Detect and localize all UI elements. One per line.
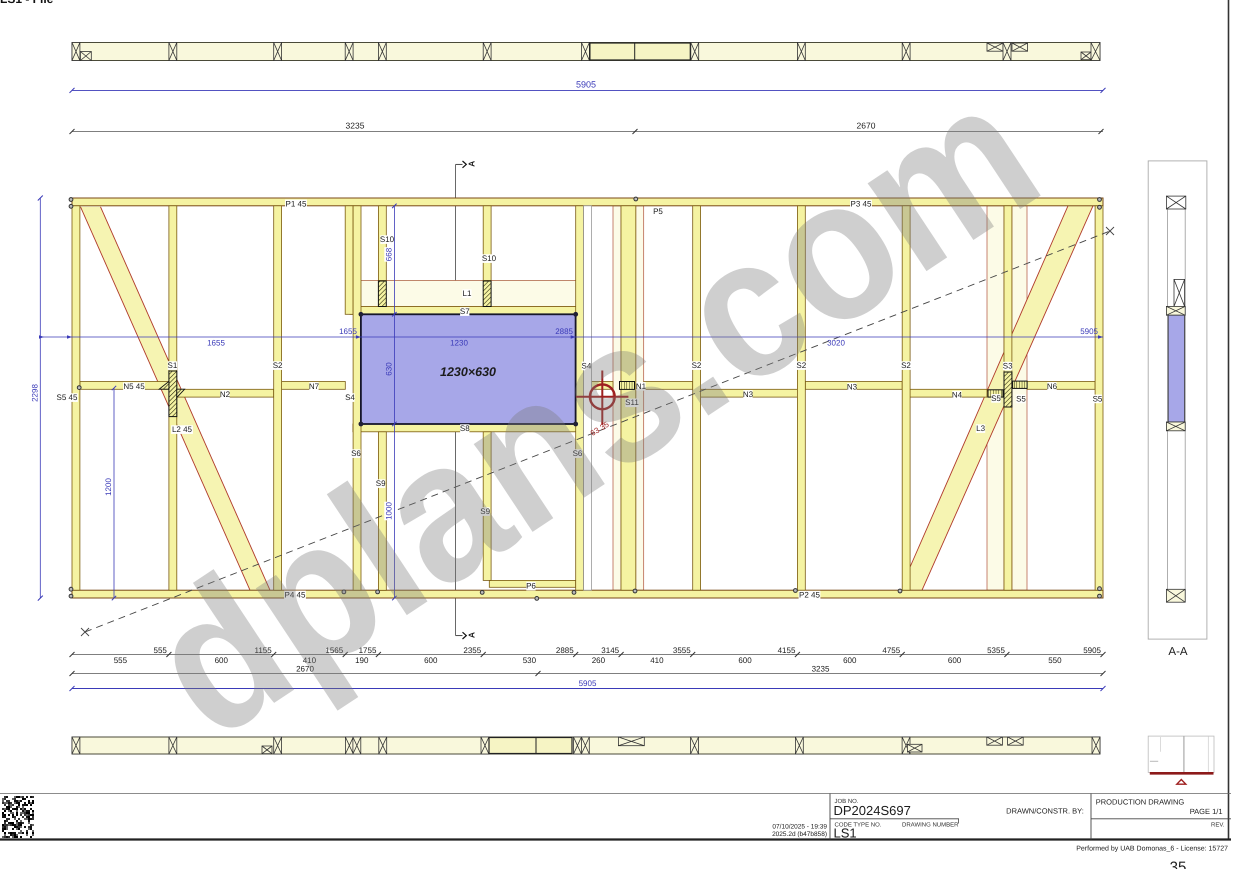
- svg-text:S5: S5: [991, 394, 1001, 403]
- svg-text:3235: 3235: [346, 121, 365, 131]
- svg-text:410: 410: [650, 656, 664, 665]
- svg-text:1230: 1230: [450, 339, 468, 348]
- svg-text:S5 45: S5 45: [57, 393, 78, 402]
- svg-text:5905: 5905: [1083, 646, 1101, 655]
- svg-text:N3: N3: [847, 383, 858, 392]
- svg-text:35: 35: [1170, 859, 1187, 869]
- svg-text:600: 600: [948, 656, 962, 665]
- svg-text:L2 45: L2 45: [172, 425, 193, 434]
- svg-text:3235: 3235: [812, 665, 830, 674]
- svg-text:P1 45: P1 45: [286, 199, 307, 208]
- svg-text:600: 600: [843, 656, 857, 665]
- svg-text:5905: 5905: [576, 80, 596, 90]
- svg-text:530: 530: [523, 656, 537, 665]
- svg-text:5355: 5355: [987, 646, 1005, 655]
- svg-text:550: 550: [1048, 656, 1062, 665]
- svg-text:L3: L3: [976, 424, 985, 433]
- svg-text:LS1 - File: LS1 - File: [0, 0, 54, 6]
- svg-text:A: A: [467, 632, 477, 638]
- svg-text:S2: S2: [901, 361, 911, 370]
- svg-text:S3: S3: [1003, 362, 1013, 371]
- svg-text:S10: S10: [482, 254, 497, 263]
- svg-text:N4: N4: [952, 391, 963, 400]
- svg-text:Performed by UAB Domonas_6 - L: Performed by UAB Domonas_6 - License: 15…: [1076, 844, 1228, 852]
- svg-text:1655: 1655: [207, 339, 225, 348]
- svg-text:1655: 1655: [339, 327, 357, 336]
- svg-text:PAGE 1/1: PAGE 1/1: [1190, 807, 1223, 816]
- svg-text:S1: S1: [168, 361, 178, 370]
- svg-text:LS1: LS1: [834, 825, 857, 840]
- svg-text:S10: S10: [380, 235, 395, 244]
- svg-text:P2 45: P2 45: [799, 591, 820, 600]
- svg-text:PRODUCTION DRAWING: PRODUCTION DRAWING: [1096, 797, 1185, 806]
- svg-text:2355: 2355: [463, 646, 481, 655]
- svg-text:2298: 2298: [31, 384, 40, 402]
- svg-text:N2: N2: [220, 390, 231, 399]
- svg-text:N6: N6: [1047, 382, 1058, 391]
- svg-text:S5: S5: [1016, 394, 1026, 403]
- svg-text:5905: 5905: [1080, 327, 1098, 336]
- svg-text:1200: 1200: [104, 478, 113, 496]
- svg-text:3555: 3555: [673, 646, 691, 655]
- svg-text:630: 630: [385, 362, 394, 376]
- svg-text:3145: 3145: [601, 646, 619, 655]
- svg-text:S2: S2: [273, 361, 283, 370]
- svg-text:S4: S4: [345, 393, 355, 402]
- svg-text:555: 555: [114, 656, 128, 665]
- svg-text:600: 600: [424, 656, 438, 665]
- svg-text:07/10/2025 - 19:39: 07/10/2025 - 19:39: [772, 824, 827, 831]
- svg-text:S7: S7: [460, 307, 470, 316]
- svg-text:2885: 2885: [556, 646, 574, 655]
- svg-text:4155: 4155: [778, 646, 796, 655]
- svg-text:DP2024S697: DP2024S697: [834, 803, 911, 818]
- svg-text:260: 260: [592, 656, 606, 665]
- svg-text:N5 45: N5 45: [123, 382, 145, 391]
- svg-text:N7: N7: [309, 382, 320, 391]
- svg-text:DRAWN/CONSTR. BY:: DRAWN/CONSTR. BY:: [1006, 807, 1084, 816]
- svg-text:REV.: REV.: [1211, 821, 1225, 828]
- svg-text:A-A: A-A: [1168, 646, 1188, 658]
- svg-text:4755: 4755: [882, 646, 900, 655]
- svg-text:668: 668: [385, 247, 394, 261]
- svg-text:600: 600: [738, 656, 752, 665]
- svg-text:A: A: [467, 161, 477, 167]
- svg-text:DRAWING NUMBER: DRAWING NUMBER: [902, 821, 959, 828]
- svg-text:S5: S5: [1093, 394, 1103, 403]
- svg-text:5905: 5905: [579, 679, 597, 688]
- svg-text:2025.2d (b47b858): 2025.2d (b47b858): [772, 831, 827, 838]
- svg-text:L1: L1: [463, 289, 472, 298]
- svg-text:P5: P5: [653, 207, 663, 216]
